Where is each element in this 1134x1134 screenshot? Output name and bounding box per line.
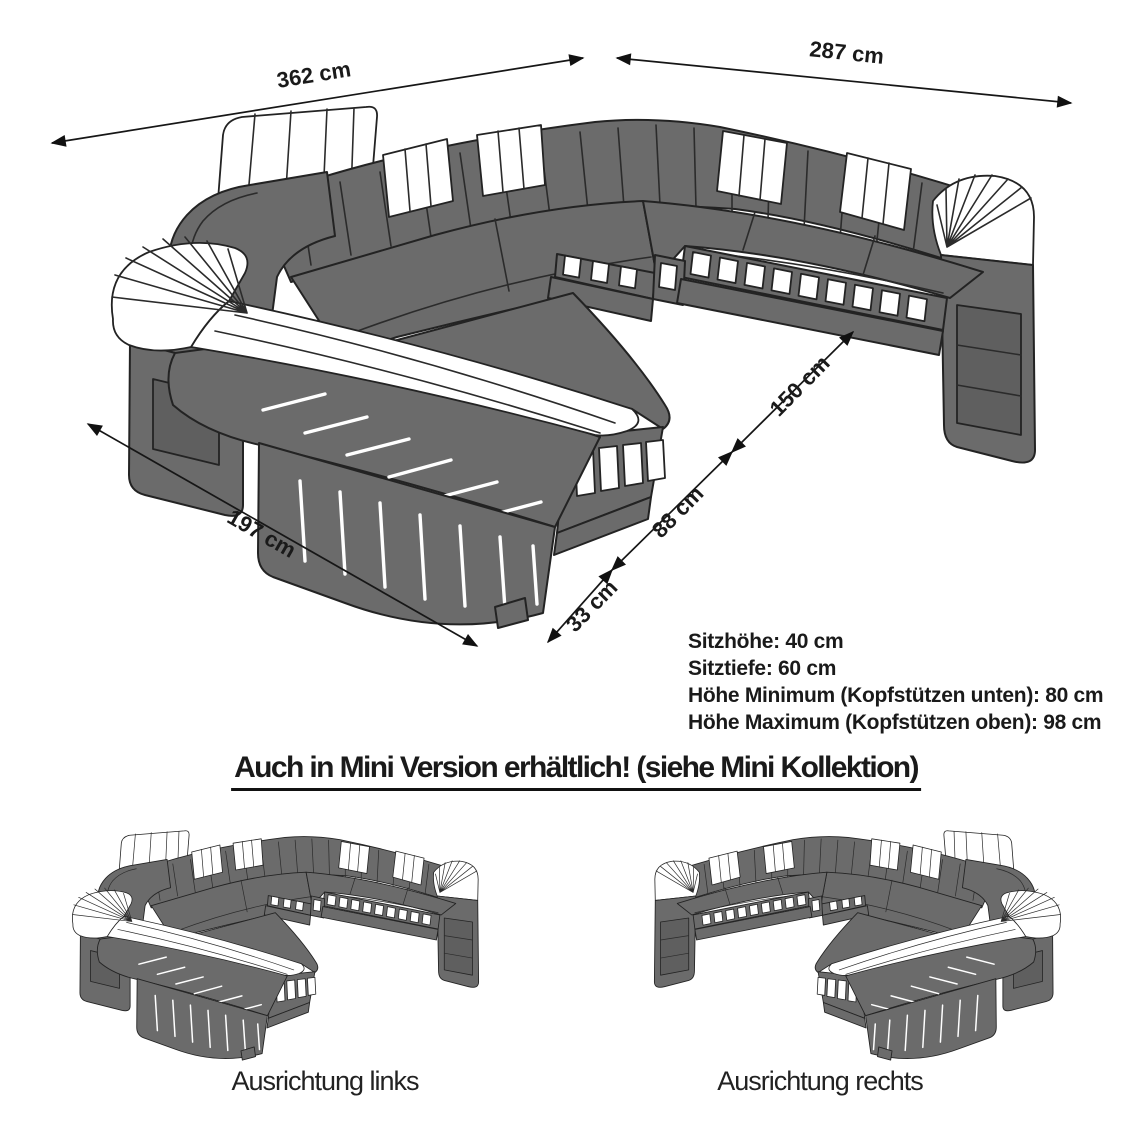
dim-label-depth-mid: 88 cm (647, 481, 709, 543)
spec-height-max: Höhe Maximum (Kopfstützen oben): 98 cm (688, 709, 1103, 736)
spec-height-min: Höhe Minimum (Kopfstützen unten): 80 cm (688, 682, 1103, 709)
spec-list: Sitzhöhe: 40 cm Sitztiefe: 60 cm Höhe Mi… (688, 628, 1103, 736)
dim-label-depth-front: 33 cm (561, 575, 623, 637)
dim-label-back-right: 287 cm (808, 36, 885, 69)
sofa-illustration-mini-left (72, 831, 478, 1060)
spec-seat-depth: Sitztiefe: 60 cm (688, 655, 1103, 682)
dim-label-depth-rear: 150 cm (765, 350, 835, 421)
dim-label-back-left: 362 cm (275, 56, 353, 93)
sofa-illustration-main (112, 107, 1035, 628)
variant-label-left: Ausrichtung links (231, 1066, 418, 1097)
spec-seat-height: Sitzhöhe: 40 cm (688, 628, 1103, 655)
diagram-canvas: 362 cm 287 cm 197 cm 150 cm 88 cm 33 cm (0, 0, 1134, 1134)
variant-label-right: Ausrichtung rechts (717, 1066, 923, 1097)
mini-version-heading: Auch in Mini Version erhältlich! (siehe … (231, 751, 921, 791)
sofa-illustration-mini-right (654, 831, 1060, 1060)
sofa-dimension-diagram: 362 cm 287 cm 197 cm 150 cm 88 cm 33 cm … (0, 0, 1134, 1134)
